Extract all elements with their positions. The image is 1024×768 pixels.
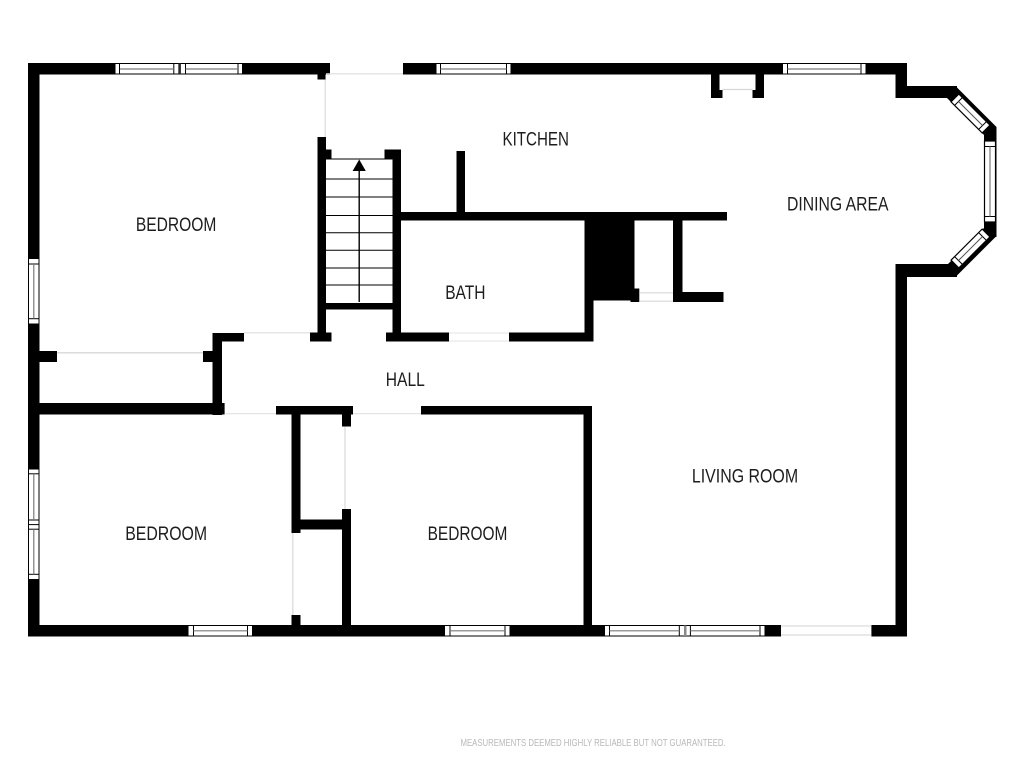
- svg-text:DINING AREA: DINING AREA: [787, 194, 889, 216]
- svg-text:BEDROOM: BEDROOM: [125, 523, 207, 545]
- svg-text:MEASUREMENTS DEEMED HIGHLY REL: MEASUREMENTS DEEMED HIGHLY RELIABLE BUT …: [461, 737, 726, 749]
- svg-text:HALL: HALL: [386, 369, 425, 391]
- svg-text:BEDROOM: BEDROOM: [136, 214, 217, 236]
- svg-text:BATH: BATH: [445, 282, 485, 304]
- svg-text:LIVING ROOM: LIVING ROOM: [692, 465, 798, 487]
- svg-text:BEDROOM: BEDROOM: [428, 523, 508, 545]
- svg-text:KITCHEN: KITCHEN: [503, 128, 569, 150]
